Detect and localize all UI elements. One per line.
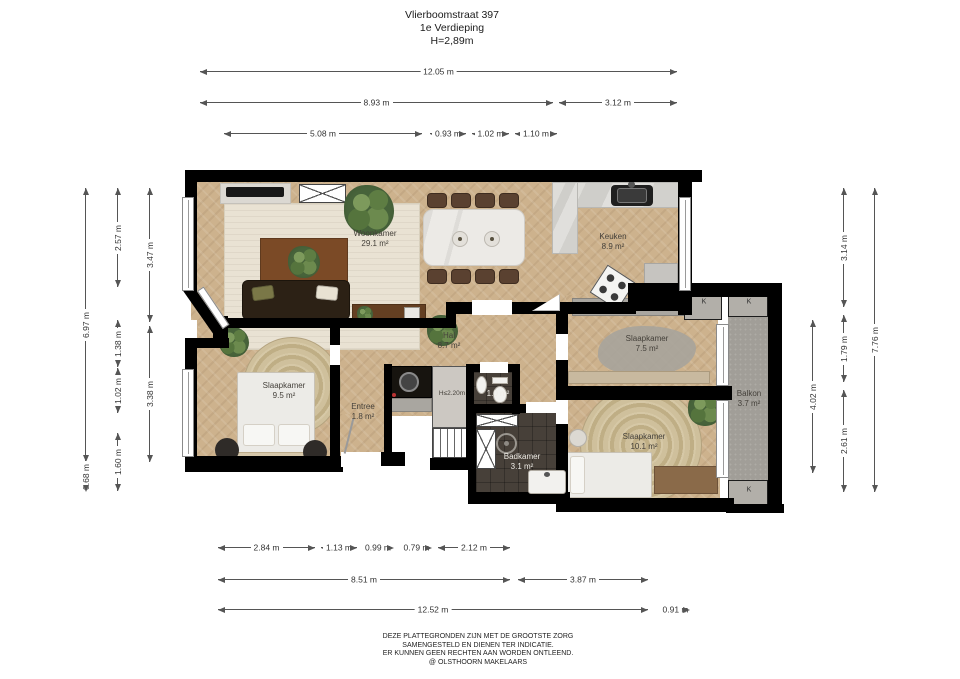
table-centerpiece — [484, 231, 500, 247]
bed-pillow — [278, 424, 310, 446]
window-bedroom-95-left — [182, 369, 194, 457]
door-bathroom — [526, 402, 560, 413]
dimension-line: 12.52 m — [218, 609, 648, 610]
shower-drain — [504, 441, 509, 446]
wall — [330, 325, 340, 345]
dimension-line: 1.60 m — [117, 433, 118, 491]
wall — [185, 456, 343, 472]
door-toilet — [480, 362, 508, 373]
living-room-plant — [344, 185, 394, 235]
title-ceiling-height: H=2,89m — [405, 35, 499, 48]
dimension-line: 3.12 m — [559, 102, 677, 103]
pouf — [569, 429, 587, 447]
dining-chair — [427, 269, 447, 284]
toilet-tank — [492, 377, 508, 384]
staircase — [432, 428, 468, 458]
toilet-bowl — [493, 386, 507, 403]
dimension-line: 1.02 m — [117, 368, 118, 413]
toilet-hand-basin — [476, 376, 487, 394]
wall — [468, 404, 476, 500]
dining-chair — [475, 193, 495, 208]
dimension-line: 0.68 m — [85, 462, 86, 492]
door-kitchen-hall — [472, 300, 512, 315]
wall — [384, 364, 392, 454]
dining-chair — [427, 193, 447, 208]
washing-machine — [399, 372, 419, 392]
kitchen-faucet — [628, 181, 635, 188]
disclaimer-line: DEZE PLATTEGRONDEN ZIJN MET DE GROOTSTE … — [383, 633, 574, 642]
disclaimer: DEZE PLATTEGRONDEN ZIJN MET DE GROOTSTE … — [383, 633, 574, 667]
floorplan-page: Vlierboomstraat 397 1e Verdieping H=2,89… — [0, 0, 960, 679]
dimension-line: 2.12 m — [438, 547, 510, 548]
dimension-line: 0.91 m — [661, 609, 690, 610]
wall — [556, 360, 568, 388]
wall — [446, 302, 456, 328]
dimension-line: 7.76 m — [874, 188, 875, 492]
table-centerpiece — [452, 231, 468, 247]
wall — [556, 386, 568, 400]
plan-title: Vlierboomstraat 397 1e Verdieping H=2,89… — [405, 9, 499, 48]
wall-bedroom-divider — [566, 386, 732, 400]
dimension-line: 3.47 m — [149, 188, 150, 322]
closet-k-balcony-bottom — [728, 480, 768, 505]
dining-chair — [475, 269, 495, 284]
dimension-line: 5.08 m — [224, 133, 422, 134]
wall-outer-right — [768, 283, 782, 513]
cabinet-crossed — [299, 184, 346, 203]
wall — [628, 283, 682, 311]
dimension-line: 1.79 m — [843, 315, 844, 382]
dimension-line: 0.99 m — [362, 547, 394, 548]
wall — [379, 452, 405, 466]
dining-table — [423, 209, 525, 266]
kitchen-sink-basin — [617, 188, 647, 203]
disclaimer-line: SAMENGESTELD EN DIENEN TER INDICATIE. — [383, 642, 574, 651]
basin-tap — [544, 472, 550, 477]
dimension-line: 0.93 m — [430, 133, 466, 134]
dining-chair — [499, 193, 519, 208]
door-bedroom-75 — [556, 334, 568, 360]
dimension-line: 1.13 m — [321, 547, 357, 548]
wall — [726, 504, 784, 513]
dimension-line: 0.79 m — [401, 547, 432, 548]
dimension-line: 1.38 m — [117, 320, 118, 367]
bedroom-101-dresser — [654, 466, 718, 494]
dimension-line: 12.05 m — [200, 71, 677, 72]
wall — [330, 365, 340, 459]
dimension-line: 6.97 m — [85, 188, 86, 462]
dimension-line: 3.14 m — [843, 188, 844, 307]
dimension-line: 1.02 m — [472, 133, 509, 134]
tv — [226, 187, 284, 197]
dimension-line: 4.02 m — [812, 320, 813, 473]
door-bedroom-95 — [330, 345, 340, 365]
bedroom-75-bench — [568, 371, 710, 384]
washer-indicator — [392, 393, 396, 397]
dimension-line: 2.84 m — [218, 547, 315, 548]
dimension-line: 3.38 m — [149, 326, 150, 462]
disclaimer-line: ER KUNNEN GEEN RECHTEN AAN WORDEN ONTLEE… — [383, 650, 574, 659]
bed-pillow — [570, 456, 585, 494]
front-door-opening — [341, 452, 381, 467]
sofa-pillow-cream — [315, 285, 338, 301]
window-bedroom-75-right — [716, 324, 729, 386]
dimension-line: 2.61 m — [843, 390, 844, 492]
dining-chair — [451, 193, 471, 208]
dimension-line: 8.93 m — [200, 102, 553, 103]
dimension-line: 1.10 m — [515, 133, 557, 134]
dining-chair — [451, 269, 471, 284]
void-box-vertical — [476, 429, 496, 469]
wall — [678, 283, 782, 297]
void-box-horizontal — [476, 414, 518, 427]
wall — [190, 170, 702, 182]
dimension-line: 3.87 m — [518, 579, 648, 580]
washer-closet-floor — [390, 398, 432, 412]
title-floor: 1e Verdieping — [405, 22, 499, 35]
wall — [430, 458, 470, 470]
title-address: Vlierboomstraat 397 — [405, 9, 499, 22]
window-balcony-door — [716, 400, 729, 478]
window-living-left — [182, 197, 194, 291]
disclaimer-line: @ OLSTHOORN MAKELAARS — [383, 659, 574, 668]
floor-balcony — [728, 317, 768, 481]
kitchen-counter-column — [552, 182, 578, 254]
dimension-line: 8.51 m — [218, 579, 510, 580]
coffee-table-plant — [288, 246, 320, 278]
window-kitchen-right — [679, 197, 691, 291]
dining-chair — [499, 269, 519, 284]
dimension-line: 2.57 m — [117, 188, 118, 287]
bed-pillow — [243, 424, 275, 446]
wall — [556, 498, 734, 512]
